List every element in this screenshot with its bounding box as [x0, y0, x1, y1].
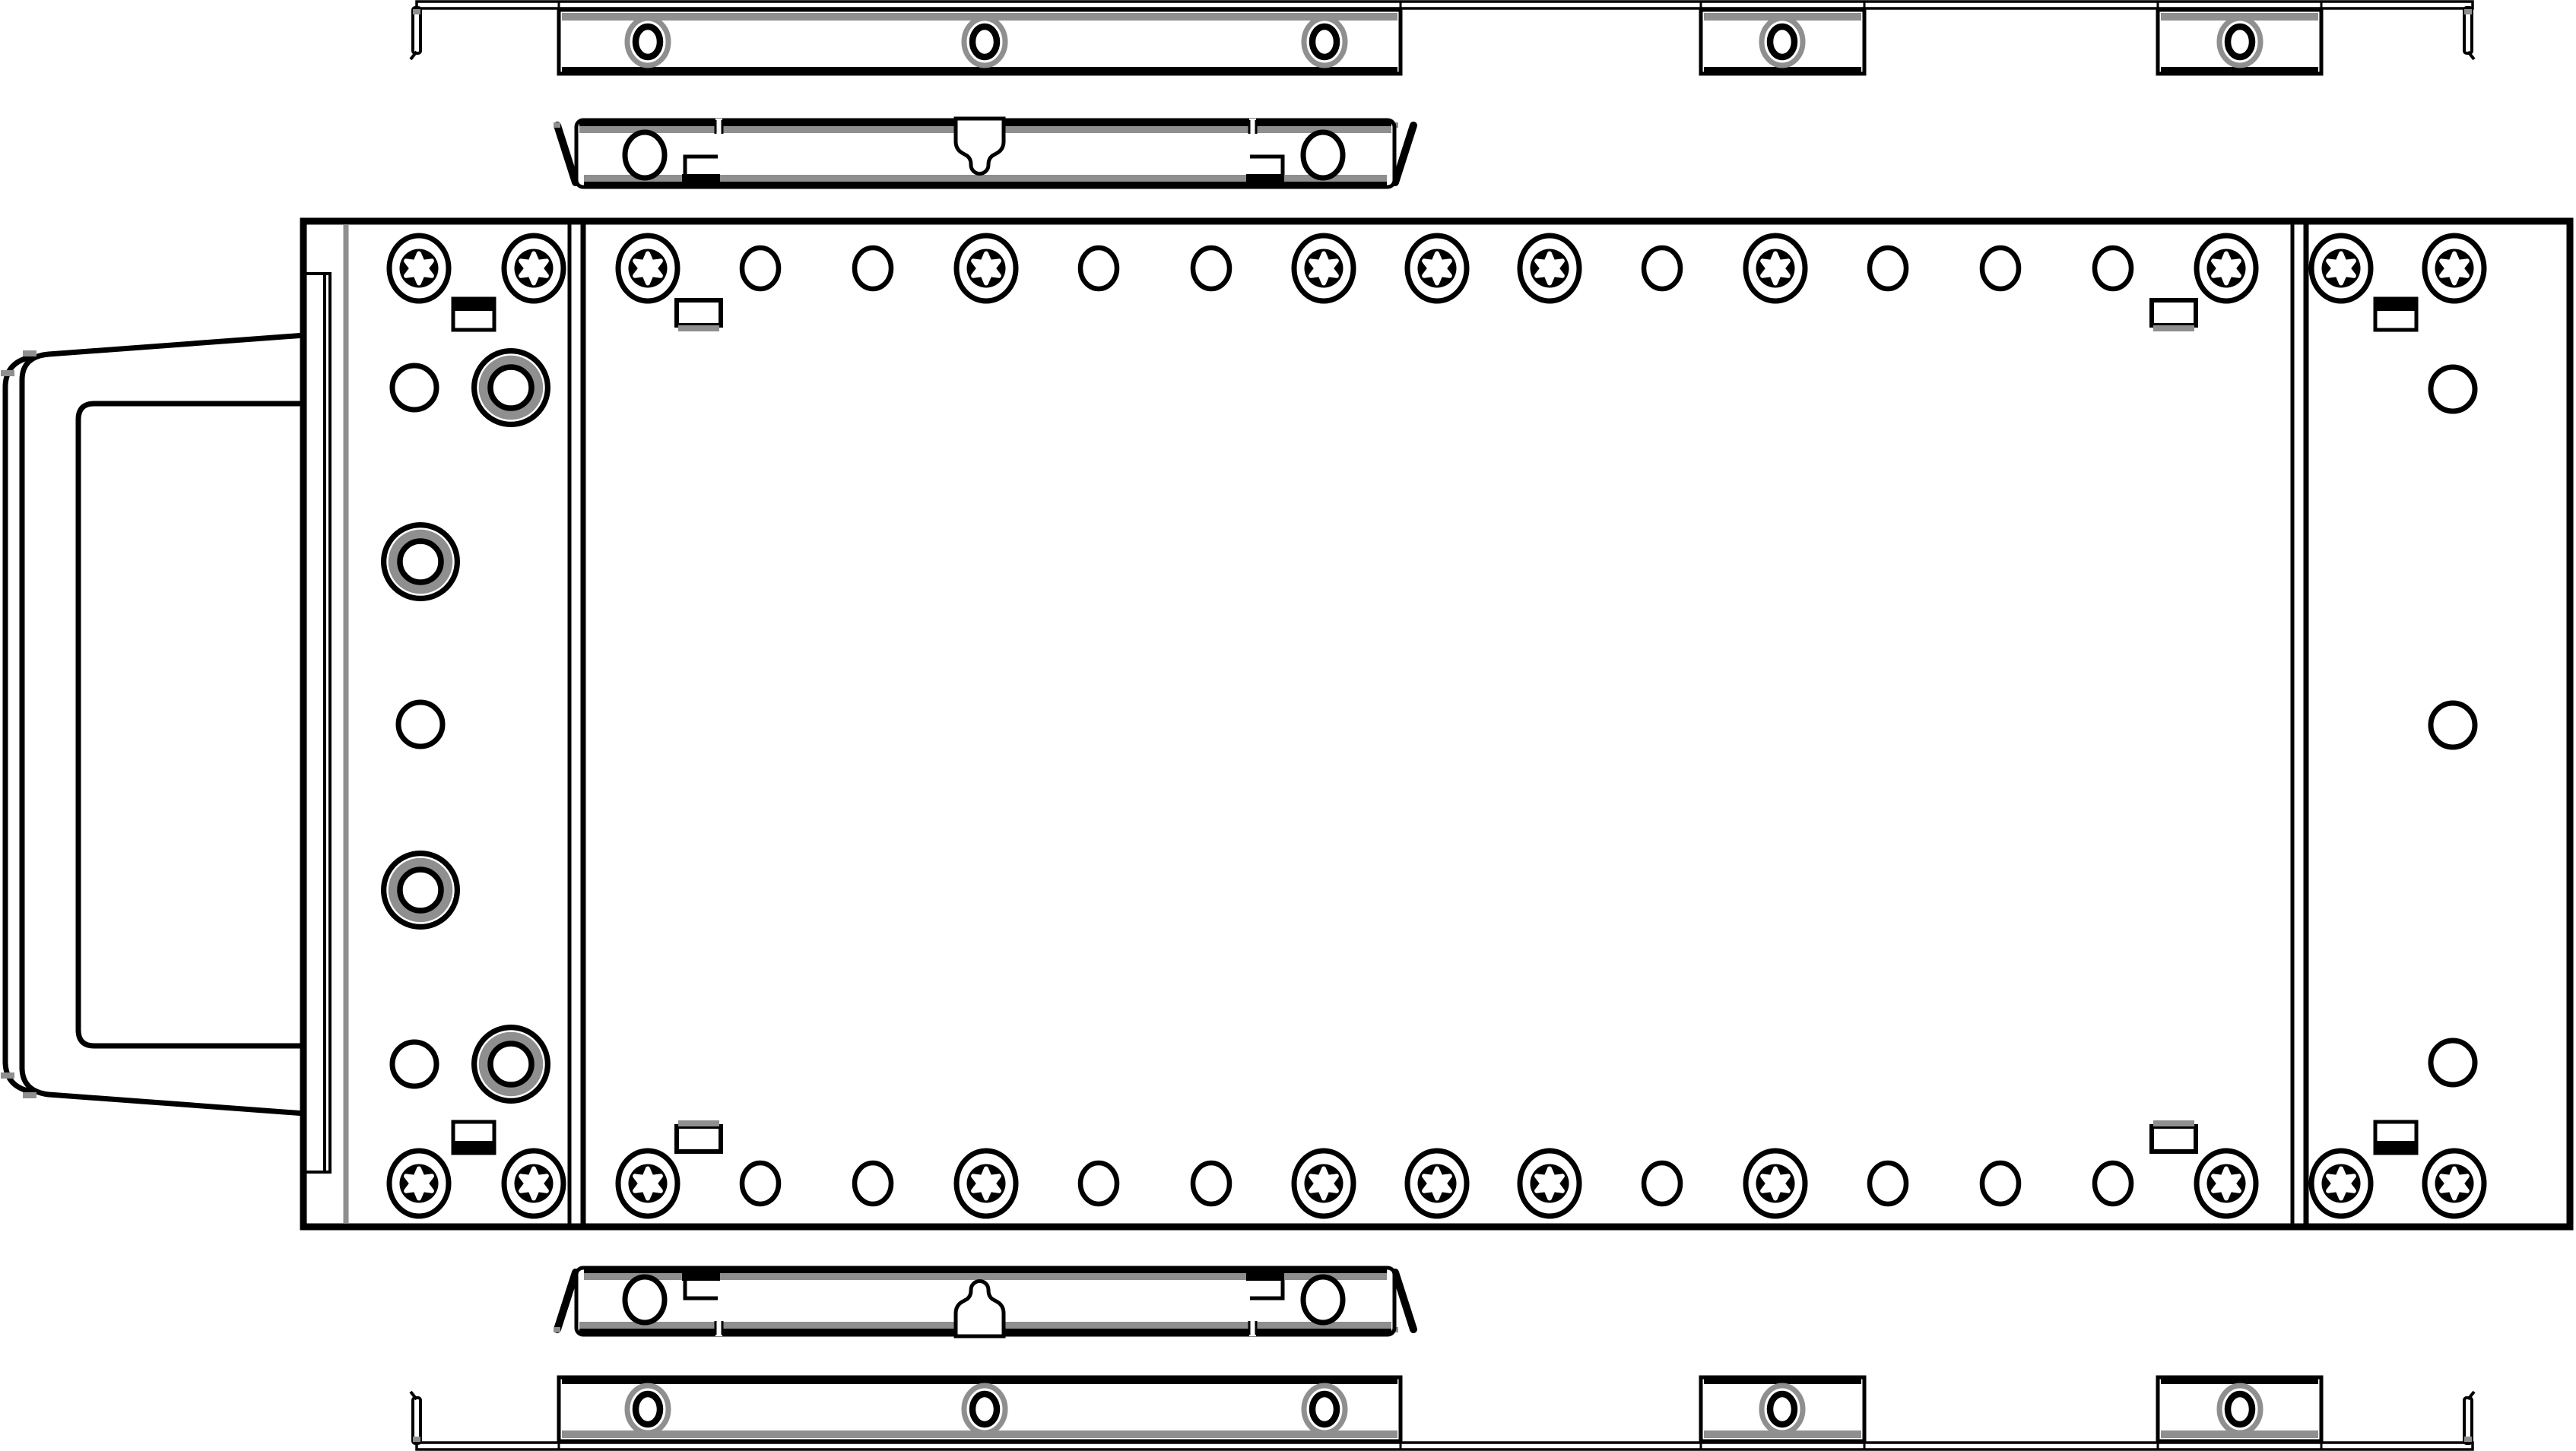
- plain-hole: [855, 1163, 891, 1204]
- plain-hole: [1080, 248, 1117, 289]
- spring-clip: [554, 122, 576, 182]
- rail-end-hook: [2464, 1392, 2474, 1443]
- clip-hole: [625, 1277, 665, 1323]
- clip-hole: [625, 132, 665, 178]
- plain-hole: [1982, 248, 2019, 289]
- panel-hole: [2431, 1041, 2475, 1085]
- plain-hole: [1870, 1163, 1906, 1204]
- torx-screw: [1407, 236, 1467, 301]
- rail-end-hook: [2464, 8, 2474, 59]
- torx-screw: [1746, 236, 1805, 301]
- bottom-retainer-clip: [554, 1266, 1413, 1336]
- clip-hole: [1303, 132, 1343, 178]
- plain-hole: [1982, 1163, 2019, 1204]
- vent-cutout: [2152, 1120, 2196, 1152]
- rail-screw: [2219, 1386, 2260, 1433]
- top-mounting-rail: [411, 1, 2474, 74]
- plain-hole: [2095, 248, 2131, 289]
- rail-screw: [1762, 18, 1803, 65]
- plain-hole: [742, 1163, 779, 1204]
- side-handle: [1, 335, 305, 1114]
- plain-hole: [1644, 248, 1680, 289]
- vent-cutout: [677, 300, 721, 331]
- torx-screw: [1294, 1151, 1353, 1216]
- rail-screw: [964, 1386, 1005, 1433]
- grommet: [384, 525, 457, 598]
- plain-hole: [1080, 1163, 1117, 1204]
- grommet: [474, 351, 547, 424]
- torx-screw: [2425, 1151, 2484, 1216]
- plain-hole: [1193, 248, 1229, 289]
- rail-screw: [1304, 18, 1345, 65]
- torx-screw: [1520, 1151, 1579, 1216]
- chassis-body: [303, 221, 2570, 1227]
- grommet: [384, 854, 457, 927]
- torx-screw: [618, 236, 677, 301]
- rail-back-bar: [417, 2, 2473, 8]
- torx-screw: [2311, 1151, 2371, 1216]
- latch-cutout: [2374, 1122, 2418, 1153]
- rail-screw: [1762, 1386, 1803, 1433]
- rail-screw: [627, 18, 668, 65]
- rail-end-hook: [411, 8, 420, 59]
- plain-hole: [1870, 248, 1906, 289]
- panel-hole: [2431, 367, 2475, 411]
- panel-hole: [392, 366, 436, 410]
- rail-screw: [2219, 18, 2260, 65]
- plain-hole: [1193, 1163, 1229, 1204]
- vent-cutout: [2152, 300, 2196, 331]
- torx-screw: [2197, 236, 2256, 301]
- rail-screw: [627, 1386, 668, 1433]
- rail-back-bar: [417, 1443, 2473, 1449]
- torx-screw: [618, 1151, 677, 1216]
- latch-cutout: [452, 299, 496, 330]
- clip-hole: [1303, 1277, 1343, 1323]
- panel-hole: [392, 1042, 436, 1086]
- latch-cutout: [2374, 299, 2418, 330]
- plain-hole: [855, 248, 891, 289]
- grommet: [474, 1028, 547, 1101]
- plain-hole: [742, 248, 779, 289]
- torx-screw: [1520, 236, 1579, 301]
- latch-cutout: [452, 1122, 496, 1153]
- rail-screw: [1304, 1386, 1345, 1433]
- panel-hole: [2431, 703, 2475, 747]
- plain-hole: [1644, 1163, 1680, 1204]
- torx-screw: [1407, 1151, 1467, 1216]
- torx-screw: [2425, 236, 2484, 301]
- torx-screw: [504, 236, 563, 301]
- torx-screw: [1294, 236, 1353, 301]
- top-retainer-clip: [554, 119, 1413, 189]
- torx-screw: [389, 1151, 449, 1216]
- spring-clip: [554, 1272, 576, 1332]
- torx-screw: [1746, 1151, 1805, 1216]
- torx-screw: [956, 1151, 1016, 1216]
- torx-screw: [504, 1151, 563, 1216]
- bottom-mounting-rail: [411, 1377, 2474, 1450]
- vent-cutout: [677, 1120, 721, 1152]
- plain-hole: [2095, 1163, 2131, 1204]
- torx-screw: [2197, 1151, 2256, 1216]
- rail-screw: [964, 18, 1005, 65]
- torx-screw: [956, 236, 1016, 301]
- rail-end-hook: [411, 1392, 420, 1443]
- panel-hole: [398, 702, 443, 746]
- drawing-page: [0, 0, 2576, 1451]
- torx-screw: [389, 236, 449, 301]
- torx-screw: [2311, 236, 2371, 301]
- technical-drawing-canvas: [0, 0, 2576, 1451]
